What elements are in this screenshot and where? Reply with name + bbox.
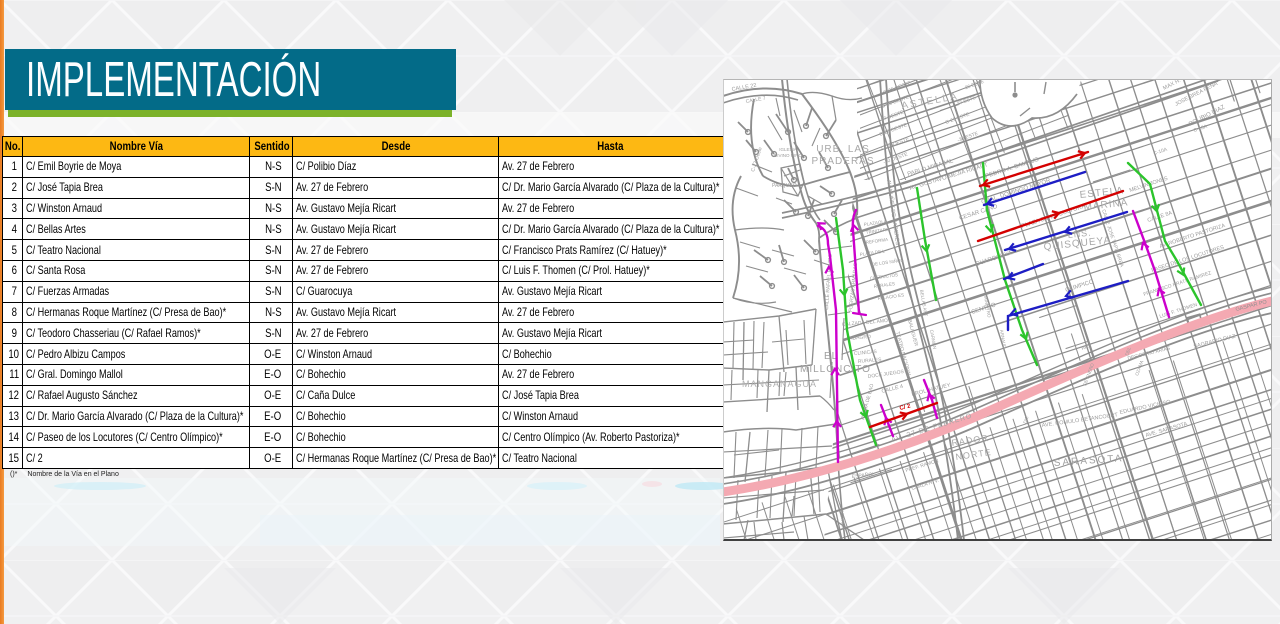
- svg-text:PRADERAS: PRADERAS: [811, 156, 874, 167]
- svg-text:PARQUEO: PARQUEO: [772, 183, 797, 189]
- svg-text:IGLESIA: IGLESIA: [779, 147, 797, 152]
- svg-text:URB. LAS: URB. LAS: [816, 144, 870, 155]
- svg-text:DIVINO NIÑO: DIVINO NIÑO: [774, 152, 803, 158]
- svg-text:MANGANAGUA: MANGANAGUA: [742, 379, 817, 389]
